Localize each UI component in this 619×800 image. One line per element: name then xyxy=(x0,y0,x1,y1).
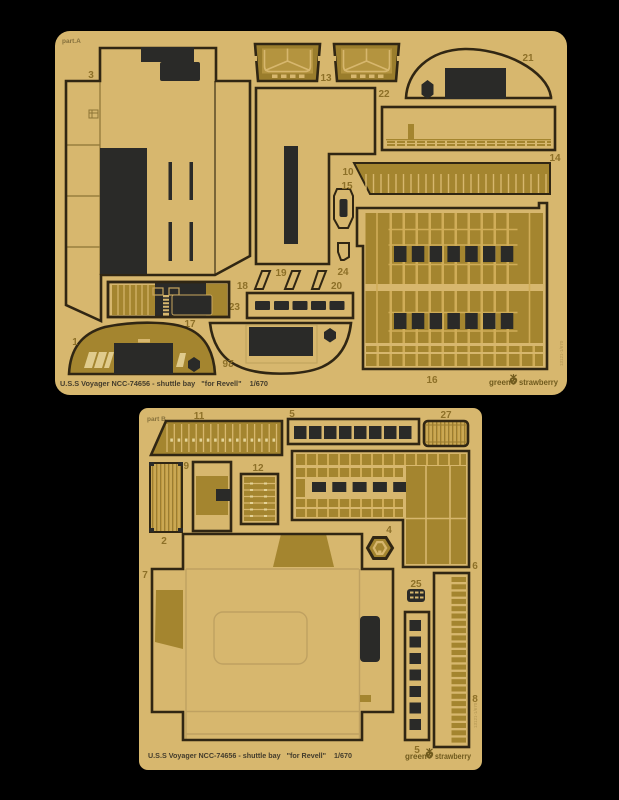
svg-text:strawberry: strawberry xyxy=(435,752,471,761)
svg-text:strawberry: strawberry xyxy=(519,378,559,387)
svg-text:19: 19 xyxy=(275,268,287,279)
svg-text:part.A: part.A xyxy=(62,38,81,45)
svg-text:12: 12 xyxy=(252,463,264,474)
svg-text:25: 25 xyxy=(410,579,422,590)
svg-text:26: 26 xyxy=(222,357,234,368)
svg-text:13121-1/670: 13121-1/670 xyxy=(559,340,564,366)
svg-text:15: 15 xyxy=(341,181,353,192)
svg-text:4: 4 xyxy=(386,525,392,536)
svg-text:13: 13 xyxy=(320,73,332,84)
svg-text:5: 5 xyxy=(289,409,295,420)
svg-text:21: 21 xyxy=(522,53,534,64)
svg-text:6: 6 xyxy=(472,561,478,572)
svg-text:13121-1/670: 13121-1/670 xyxy=(473,702,478,728)
svg-text:16: 16 xyxy=(426,375,438,386)
svg-text:2: 2 xyxy=(161,536,167,547)
svg-text:7: 7 xyxy=(142,570,148,581)
svg-text:green: green xyxy=(489,378,511,387)
svg-text:27: 27 xyxy=(440,410,452,421)
svg-text:9: 9 xyxy=(183,461,189,472)
svg-text:10: 10 xyxy=(342,167,354,178)
svg-text:green: green xyxy=(405,752,427,761)
svg-text:24: 24 xyxy=(337,267,349,278)
svg-text:3: 3 xyxy=(88,70,94,81)
svg-text:1: 1 xyxy=(72,337,78,348)
svg-text:18: 18 xyxy=(237,281,249,292)
svg-text:14: 14 xyxy=(549,153,561,164)
svg-text:U.S.S Voyager NCC-74656 - shut: U.S.S Voyager NCC-74656 - shuttle bay "f… xyxy=(148,753,352,760)
svg-text:22: 22 xyxy=(378,89,390,100)
svg-text:23: 23 xyxy=(229,302,241,313)
svg-text:U.S.S Voyager NCC-74656 - shut: U.S.S Voyager NCC-74656 - shuttle bay "f… xyxy=(60,381,268,388)
svg-text:11: 11 xyxy=(194,411,205,422)
svg-text:20: 20 xyxy=(331,281,343,292)
svg-text:part B: part B xyxy=(147,416,166,423)
